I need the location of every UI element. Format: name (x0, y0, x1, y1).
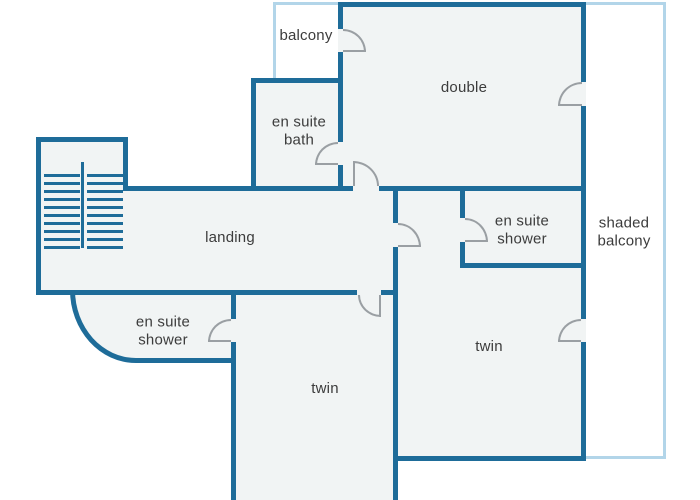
wall-segment (379, 186, 586, 191)
stair-tread (44, 238, 80, 241)
room-label-landing: landing (205, 229, 255, 247)
wall-segment (231, 290, 236, 319)
stair-tread (87, 238, 123, 241)
stair-tread (44, 174, 80, 177)
stair-tread (87, 190, 123, 193)
stair-tread (87, 214, 123, 217)
wall-segment (393, 186, 398, 223)
room-label-twin-right: twin (475, 338, 502, 356)
room-floor-twin-right (393, 186, 586, 461)
stair-tread (87, 198, 123, 201)
room-label-en-suite-shower-lower: en suite shower (136, 313, 190, 348)
shaded-balcony-outline-top (586, 2, 666, 5)
wall-segment (338, 52, 343, 142)
wall-segment (338, 165, 343, 191)
stairs-left-flight (44, 174, 80, 254)
wall-segment (123, 137, 128, 191)
stair-tread (87, 246, 123, 249)
wall-segment (581, 106, 586, 319)
stair-tread (87, 182, 123, 185)
balcony-outline-left (273, 2, 276, 80)
room-label-en-suite-shower-upper: en suite shower (495, 212, 549, 247)
room-label-double: double (441, 79, 487, 97)
wall-segment (393, 456, 586, 461)
room-label-twin-bottom: twin (311, 380, 338, 398)
shaded-balcony-outline-right (663, 2, 666, 459)
room-label-shaded-balcony: shaded balcony (597, 214, 650, 249)
wall-segment (251, 78, 343, 83)
wall-segment (231, 342, 236, 500)
stair-tread (44, 246, 80, 249)
wall-segment (338, 2, 343, 29)
stair-tread (44, 214, 80, 217)
wall-segment (123, 186, 353, 191)
stair-tread (44, 190, 80, 193)
stair-tread (44, 222, 80, 225)
stair-tread (87, 230, 123, 233)
wall-segment (36, 137, 41, 295)
wall-segment (460, 186, 465, 218)
stair-tread (44, 182, 80, 185)
stair-tread (87, 206, 123, 209)
stair-tread (87, 222, 123, 225)
balcony-outline-top (273, 2, 340, 5)
wall-segment (251, 78, 256, 191)
stair-tread (44, 230, 80, 233)
wall-segment (338, 2, 586, 7)
wall-segment (581, 2, 586, 82)
shaded-balcony-outline-bottom (586, 456, 666, 459)
wall-segment (36, 290, 357, 295)
room-label-en-suite-bath: en suite bath (272, 113, 326, 148)
wall-segment (581, 342, 586, 461)
wall-segment (393, 247, 398, 500)
floor-plan: balcony double en suite bath en suite sh… (0, 0, 700, 500)
stair-tread (44, 198, 80, 201)
stair-tread (87, 174, 123, 177)
wall-segment (460, 263, 586, 268)
stairs-right-flight (87, 174, 123, 254)
stairs-divider (81, 162, 84, 248)
room-label-balcony: balcony (279, 27, 332, 45)
wall-segment (460, 242, 465, 268)
wall-segment (36, 137, 128, 142)
stair-tread (44, 206, 80, 209)
